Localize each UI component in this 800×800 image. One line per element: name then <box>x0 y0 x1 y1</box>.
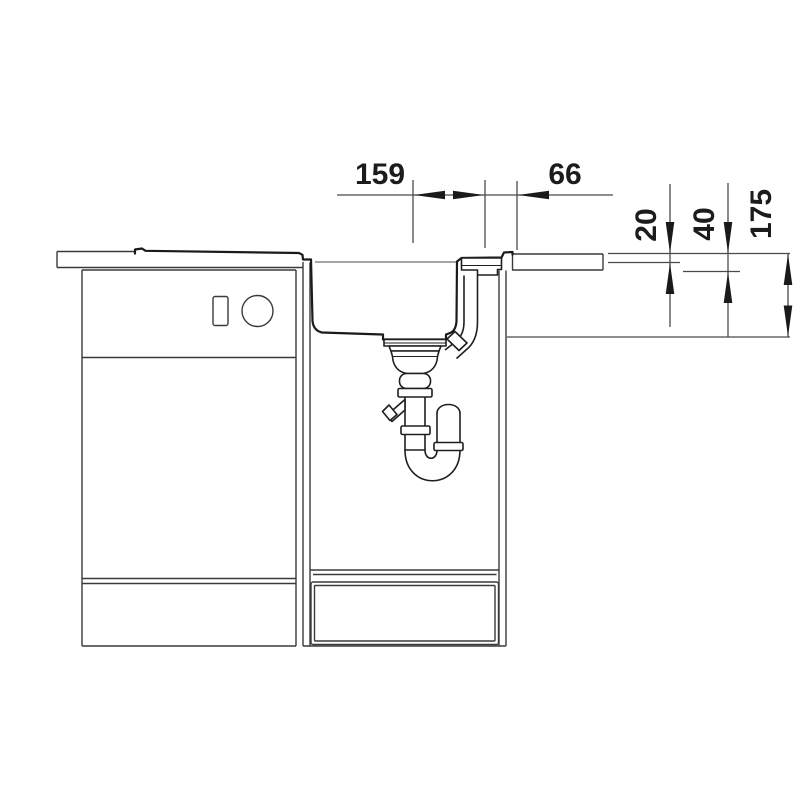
tailpipe-nut-upper <box>398 389 432 398</box>
drain-strainer <box>384 340 446 398</box>
sink-cabinet-right-wall <box>499 271 506 647</box>
sink-cabinet-lower-panel-outer <box>311 582 499 645</box>
arrow-down-20 <box>666 222 675 253</box>
tailpipe-lower <box>405 435 425 452</box>
left-cabinet-outline <box>82 270 296 646</box>
strainer-ball-joint <box>400 374 431 389</box>
sink-section-drawing: 159 66 20 40 175 <box>0 0 800 800</box>
overflow-box <box>462 258 502 275</box>
dim-label-20: 20 <box>630 208 663 241</box>
tailpipe-nut-lower <box>401 426 430 435</box>
drainboard <box>135 249 311 260</box>
outlet-riser-dome <box>437 405 460 414</box>
dim-label-175: 175 <box>745 189 778 239</box>
dim-label-40: 40 <box>688 207 721 240</box>
left-cabinet-divider <box>82 579 296 584</box>
arrow-right-159 <box>453 191 484 200</box>
dimension-top-arrows <box>414 191 549 200</box>
arrow-left-66 <box>518 191 549 200</box>
sink-cabinet-left-wall <box>303 262 310 646</box>
siphon-trap <box>383 397 464 481</box>
worktop <box>57 252 603 271</box>
arrow-down-40 <box>724 222 733 253</box>
dim-label-159: 159 <box>355 158 405 191</box>
overflow-assembly <box>445 258 502 359</box>
arrow-up-20 <box>666 263 675 294</box>
control-knob <box>242 296 273 327</box>
dim-label-66: 66 <box>548 158 581 191</box>
arrow-down-175 <box>784 306 793 337</box>
sink-cabinet-upper-panel-bottom <box>310 570 499 575</box>
technical-drawing-canvas: 159 66 20 40 175 <box>0 0 800 800</box>
arrow-up-40 <box>724 272 733 303</box>
arrow-up-175 <box>784 254 793 285</box>
sink-cabinet-lower-panel-inner <box>315 586 496 642</box>
overflow-collar-nut <box>447 332 467 351</box>
outlet-riser-nut <box>434 443 463 451</box>
u-bend <box>405 450 460 481</box>
tailpipe-upper <box>405 397 425 426</box>
control-switch <box>213 297 228 326</box>
arrow-left-159 <box>414 191 445 200</box>
left-cabinet <box>82 270 296 646</box>
strainer-cup <box>391 351 439 374</box>
overflow-downpipe <box>464 276 478 323</box>
